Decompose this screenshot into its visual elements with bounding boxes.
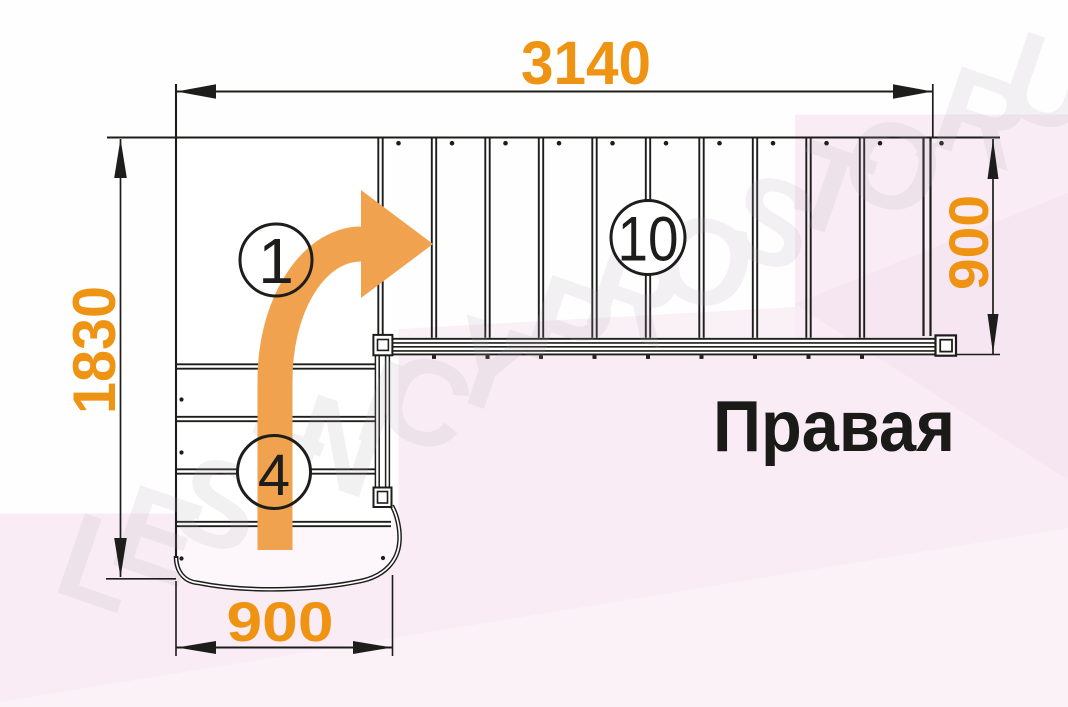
svg-text:4: 4 [258, 443, 290, 508]
svg-text:900: 900 [937, 195, 1000, 290]
svg-text:900: 900 [227, 590, 334, 653]
svg-text:3140: 3140 [521, 29, 651, 97]
svg-text:Правая: Правая [713, 387, 955, 467]
svg-text:10: 10 [618, 205, 679, 275]
svg-text:1: 1 [258, 225, 294, 297]
svg-text:1830: 1830 [61, 286, 128, 414]
